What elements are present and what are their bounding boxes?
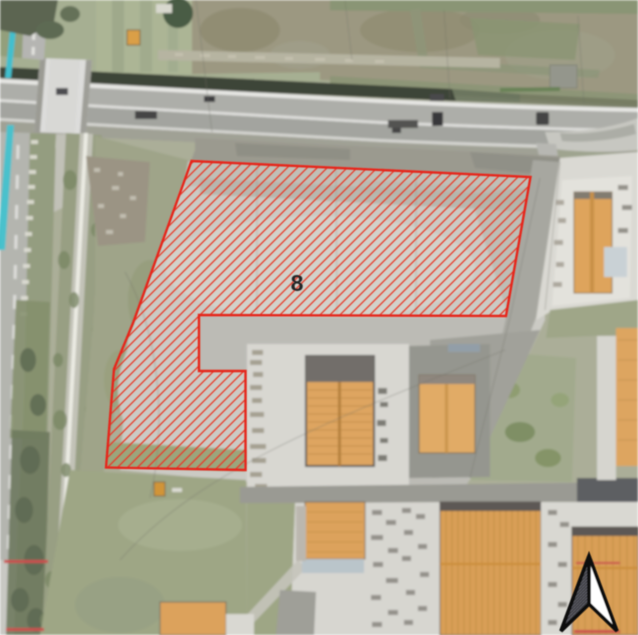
svg-text:8: 8 (291, 270, 304, 296)
